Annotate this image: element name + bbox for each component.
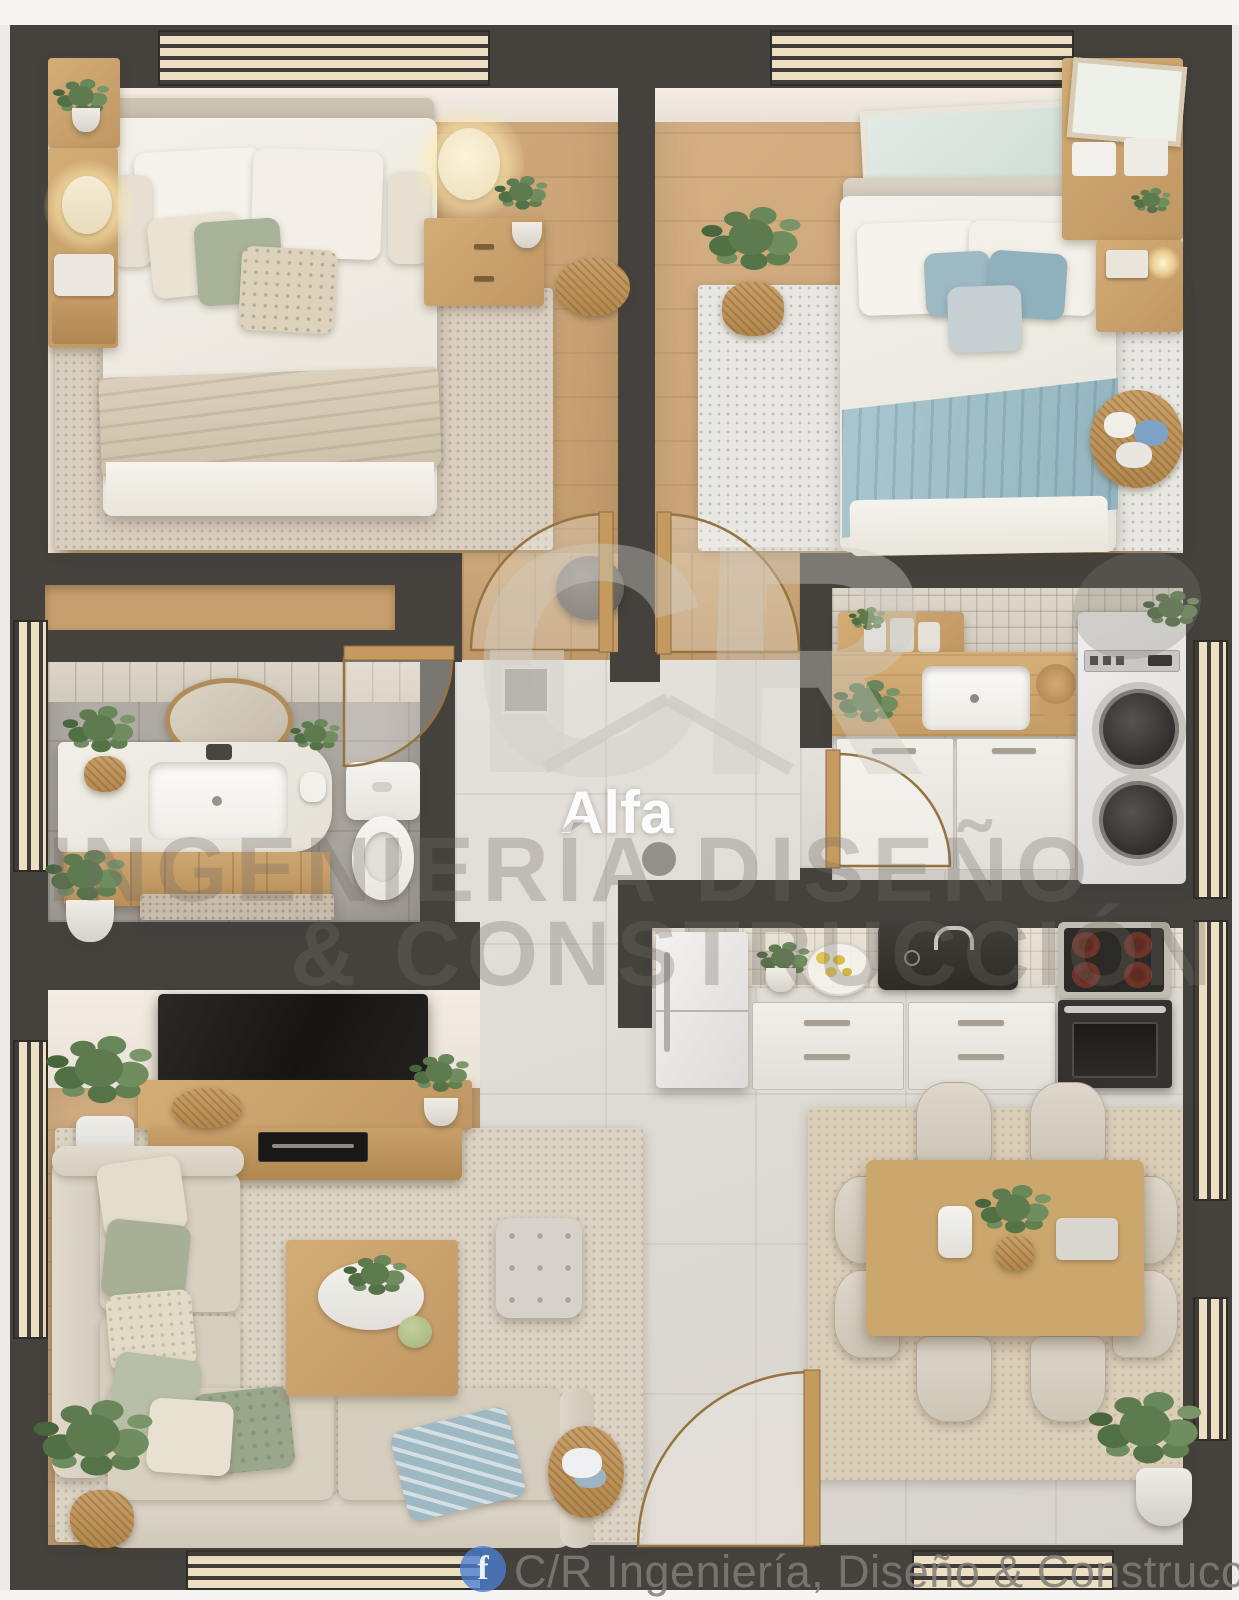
bedroom2-door-leaf xyxy=(657,512,671,654)
facebook-glyph: f xyxy=(477,1550,488,1587)
bedroom2-door-arc xyxy=(661,514,799,652)
laundry-door-leaf xyxy=(826,750,840,868)
front-door-leaf xyxy=(804,1370,820,1546)
door-swings xyxy=(0,0,1239,1600)
bathroom-door-leaf xyxy=(344,646,454,660)
facebook-icon: f xyxy=(460,1546,506,1592)
bedroom1-door-arc xyxy=(471,514,607,650)
bedroom1-door-leaf xyxy=(599,512,613,652)
floor-plan-render: CR Alfa INGENIERÍA DISEÑO & CONSTRUCCIÓN… xyxy=(0,0,1239,1600)
footer-credit-text: C/R Ingeniería, Diseño & Construcción xyxy=(514,1546,1239,1598)
front-door-arc xyxy=(638,1372,812,1546)
bathroom-door-arc xyxy=(344,658,452,766)
laundry-door-arc xyxy=(838,754,950,866)
